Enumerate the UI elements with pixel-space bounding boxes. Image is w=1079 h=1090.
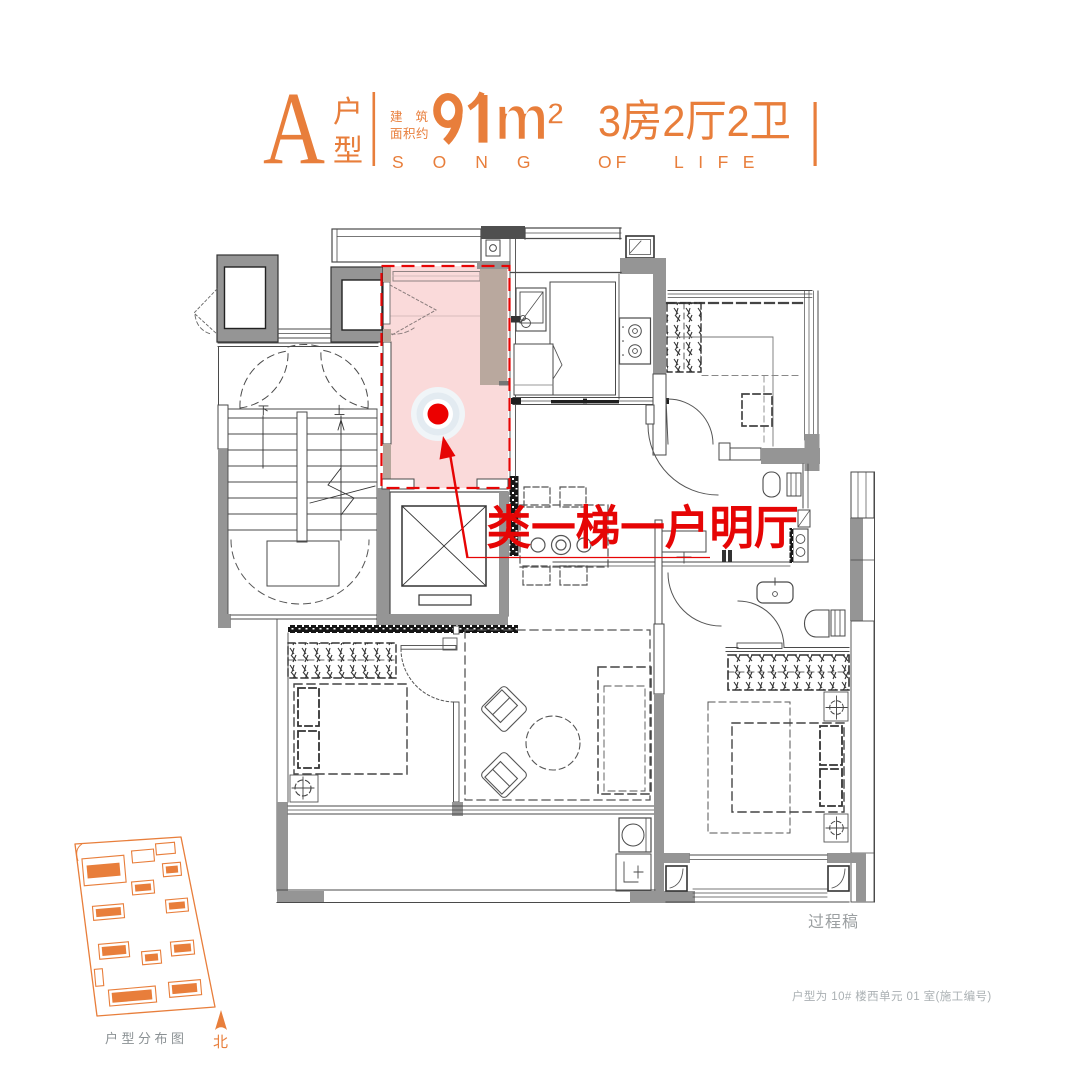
svg-text:2: 2 <box>547 96 564 131</box>
svg-text:户型分布图: 户型分布图 <box>105 1031 188 1046</box>
svg-text:3房2厅2卫: 3房2厅2卫 <box>598 97 791 146</box>
svg-text:北: 北 <box>213 1034 228 1051</box>
svg-text:OF: OF <box>598 152 630 172</box>
svg-text:上: 上 <box>334 404 345 417</box>
svg-text:下: 下 <box>258 405 269 417</box>
svg-text:LIFE: LIFE <box>674 152 769 172</box>
svg-text:类一梯一户明厅: 类一梯一户明厅 <box>487 502 799 554</box>
svg-text:m: m <box>494 81 549 154</box>
svg-text:面积约: 面积约 <box>390 126 429 141</box>
svg-text:户: 户 <box>333 96 363 129</box>
svg-text:过程稿: 过程稿 <box>808 913 859 931</box>
svg-text:SONG: SONG <box>392 152 560 172</box>
svg-text:A: A <box>263 71 325 186</box>
svg-text:型: 型 <box>333 135 363 168</box>
svg-text:户型为 10# 楼西单元 01 室(施工编号): 户型为 10# 楼西单元 01 室(施工编号) <box>792 989 992 1003</box>
